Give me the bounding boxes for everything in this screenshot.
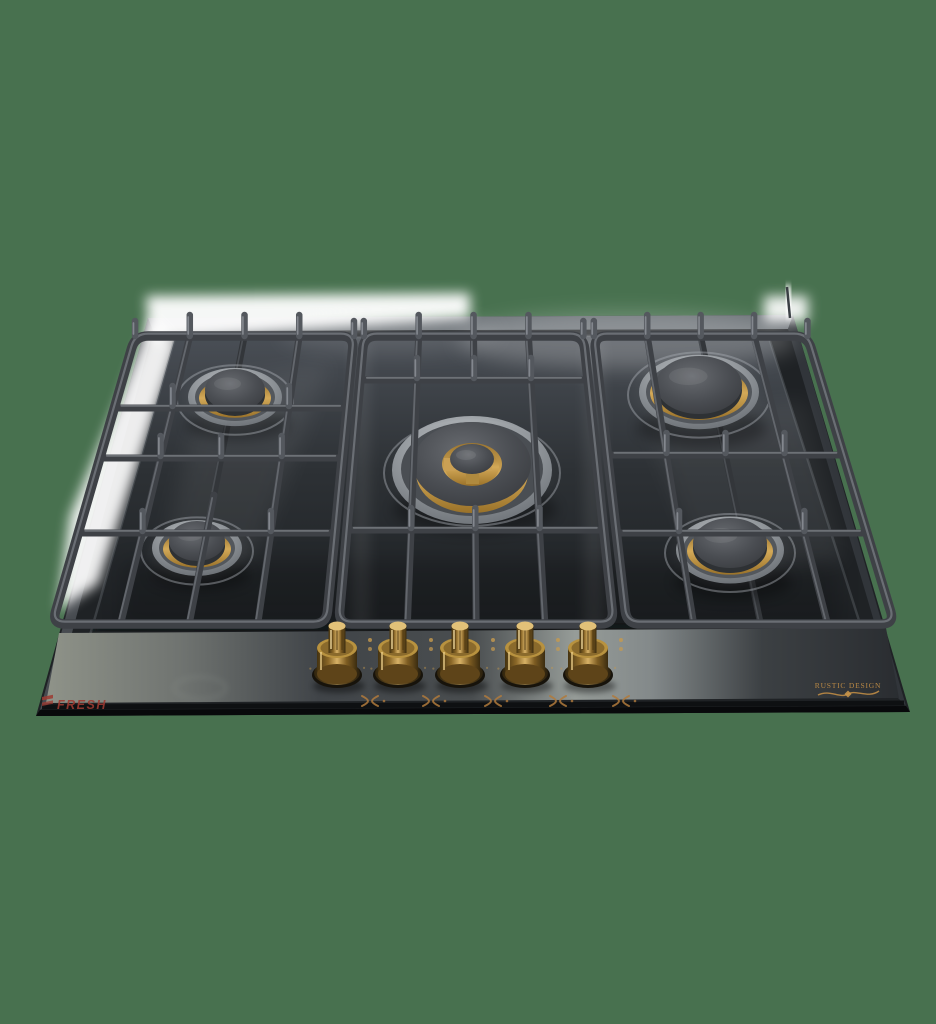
flame-dot-icon [556, 638, 560, 642]
brand-logo-text: FRESH [57, 698, 107, 712]
flame-dot-icon [368, 638, 372, 642]
product-photo-gas-hob: FRESH RUSTIC DESIGN [0, 0, 936, 1024]
flame-dot-icon [491, 638, 495, 642]
burner-back-left [177, 365, 293, 440]
flame-dot-icon [619, 638, 623, 642]
flame-dot-icon [429, 638, 433, 642]
series-label-text: RUSTIC DESIGN [815, 681, 881, 690]
gas-hob-image: FRESH RUSTIC DESIGN [0, 0, 936, 1024]
